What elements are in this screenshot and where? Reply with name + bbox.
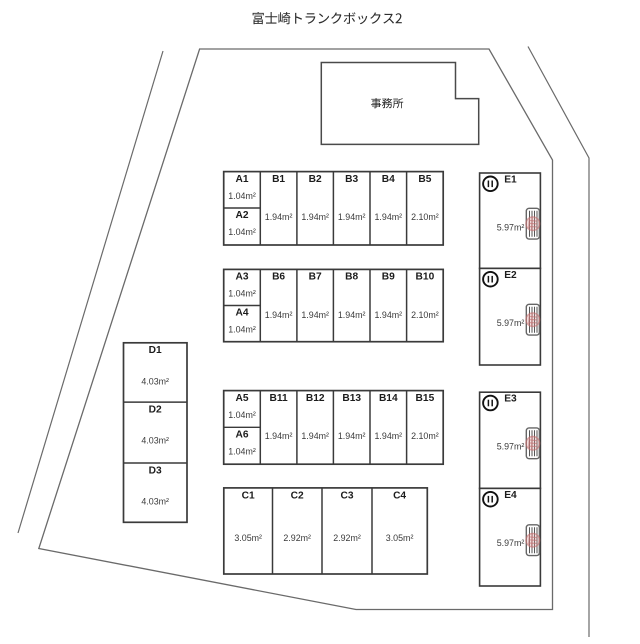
svg-text:B1: B1 — [272, 174, 285, 185]
svg-text:5.97m²: 5.97m² — [497, 223, 525, 233]
svg-text:B11: B11 — [270, 393, 288, 404]
svg-text:1.94m²: 1.94m² — [265, 431, 293, 441]
svg-text:2.10m²: 2.10m² — [411, 431, 439, 441]
svg-text:2.10m²: 2.10m² — [411, 310, 439, 320]
svg-text:C2: C2 — [291, 490, 304, 501]
svg-text:A4: A4 — [235, 308, 248, 319]
svg-text:B3: B3 — [345, 174, 358, 185]
svg-text:2.10m²: 2.10m² — [411, 212, 439, 222]
svg-text:B12: B12 — [306, 393, 325, 404]
svg-text:1.04m²: 1.04m² — [228, 191, 256, 201]
svg-text:B4: B4 — [382, 174, 395, 185]
svg-text:E1: E1 — [504, 175, 517, 186]
svg-text:5.97m²: 5.97m² — [497, 538, 525, 548]
svg-text:C3: C3 — [340, 490, 353, 501]
svg-text:E4: E4 — [504, 490, 517, 501]
svg-text:1.94m²: 1.94m² — [265, 310, 293, 320]
svg-text:C4: C4 — [393, 490, 406, 501]
svg-text:C1: C1 — [242, 490, 255, 501]
svg-text:1.04m²: 1.04m² — [228, 447, 256, 457]
svg-text:1.04m²: 1.04m² — [228, 325, 256, 335]
svg-text:E2: E2 — [504, 270, 517, 281]
svg-text:B13: B13 — [342, 393, 361, 404]
svg-text:1.04m²: 1.04m² — [228, 289, 256, 299]
svg-text:3.05m²: 3.05m² — [386, 533, 414, 543]
svg-text:D1: D1 — [149, 345, 162, 356]
svg-text:5.97m²: 5.97m² — [497, 318, 525, 328]
svg-text:B5: B5 — [418, 174, 431, 185]
svg-text:E3: E3 — [504, 394, 517, 405]
svg-text:5.97m²: 5.97m² — [497, 442, 525, 452]
svg-text:B7: B7 — [309, 272, 322, 283]
svg-text:A3: A3 — [235, 272, 248, 283]
svg-text:1.04m²: 1.04m² — [228, 410, 256, 420]
svg-text:1.94m²: 1.94m² — [301, 212, 329, 222]
svg-text:B14: B14 — [379, 393, 398, 404]
svg-text:A6: A6 — [235, 430, 248, 441]
svg-text:3.05m²: 3.05m² — [234, 533, 262, 543]
svg-text:4.03m²: 4.03m² — [141, 497, 169, 507]
svg-text:B9: B9 — [382, 272, 395, 283]
svg-text:A2: A2 — [235, 210, 248, 221]
svg-text:A5: A5 — [235, 393, 248, 404]
svg-text:1.04m²: 1.04m² — [228, 227, 256, 237]
svg-text:4.03m²: 4.03m² — [141, 376, 169, 386]
svg-text:4.03m²: 4.03m² — [141, 436, 169, 446]
svg-text:2.92m²: 2.92m² — [333, 533, 361, 543]
svg-text:D3: D3 — [149, 465, 162, 476]
svg-text:B10: B10 — [416, 272, 435, 283]
svg-text:1.94m²: 1.94m² — [338, 431, 366, 441]
svg-text:B2: B2 — [309, 174, 322, 185]
svg-text:2.92m²: 2.92m² — [283, 533, 311, 543]
svg-text:B6: B6 — [272, 272, 285, 283]
svg-text:1.94m²: 1.94m² — [338, 310, 366, 320]
svg-text:B8: B8 — [345, 272, 358, 283]
svg-text:1.94m²: 1.94m² — [374, 310, 402, 320]
svg-text:A1: A1 — [235, 174, 248, 185]
svg-text:1.94m²: 1.94m² — [338, 212, 366, 222]
svg-text:D2: D2 — [149, 405, 162, 416]
svg-text:1.94m²: 1.94m² — [374, 431, 402, 441]
svg-text:1.94m²: 1.94m² — [301, 310, 329, 320]
svg-text:1.94m²: 1.94m² — [374, 212, 402, 222]
svg-text:1.94m²: 1.94m² — [301, 431, 329, 441]
svg-text:B15: B15 — [416, 393, 435, 404]
svg-text:1.94m²: 1.94m² — [265, 212, 293, 222]
